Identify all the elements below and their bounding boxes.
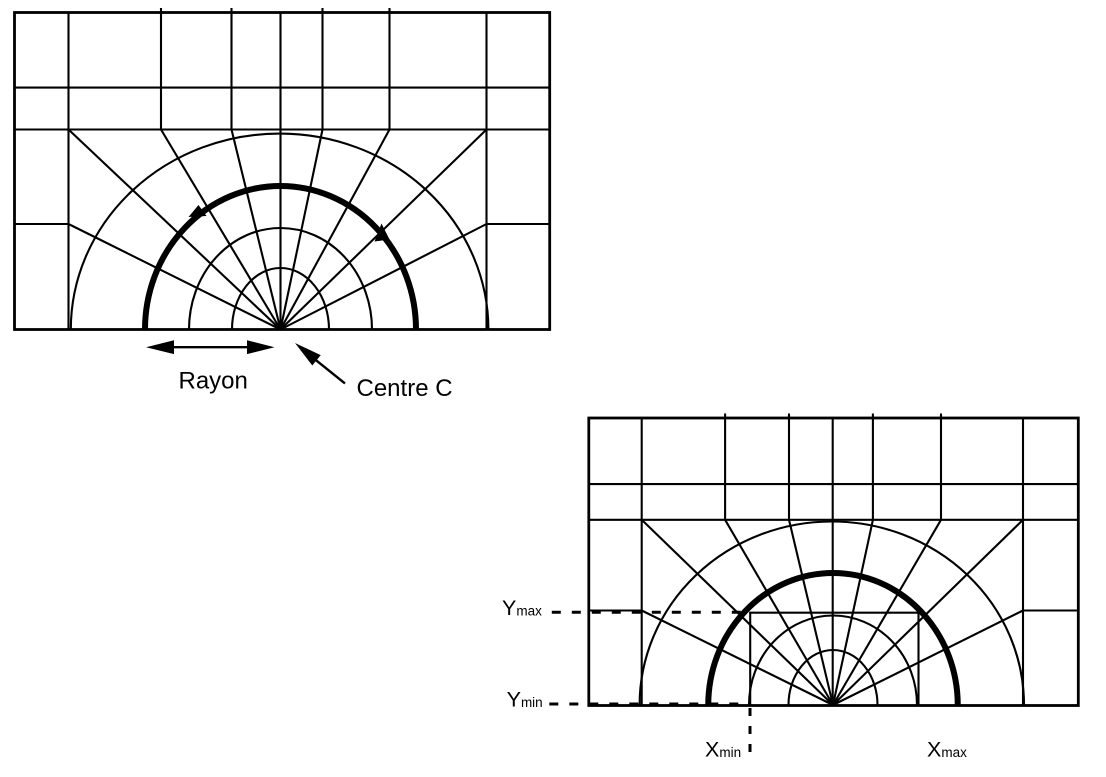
svg-text:Ymin: Ymin bbox=[507, 688, 543, 712]
svg-text:Ymax: Ymax bbox=[502, 596, 542, 620]
svg-text:Xmin: Xmin bbox=[705, 738, 741, 762]
svg-text:Centre C: Centre C bbox=[357, 375, 453, 402]
svg-text:Xmax: Xmax bbox=[927, 738, 967, 762]
svg-text:Rayon: Rayon bbox=[179, 367, 248, 394]
